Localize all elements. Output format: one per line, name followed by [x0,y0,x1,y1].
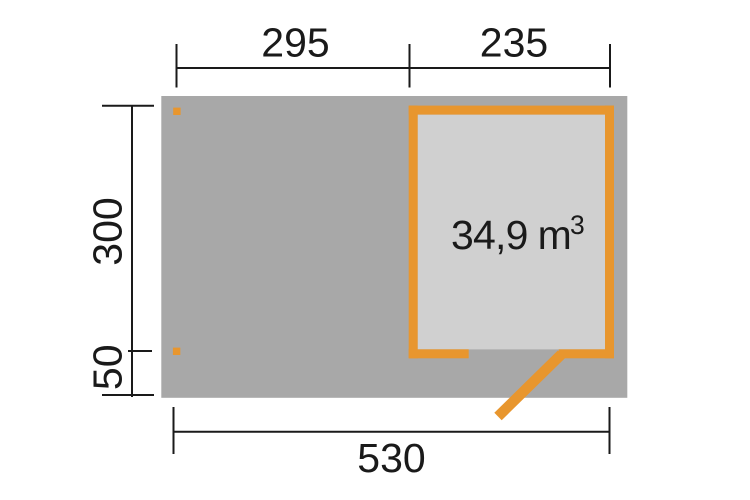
svg-text:m: m [538,212,572,258]
svg-text:530: 530 [357,435,425,481]
svg-text:295: 295 [261,20,329,66]
svg-text:34,9: 34,9 [451,212,528,258]
svg-text:300: 300 [84,197,130,265]
svg-text:3: 3 [570,210,585,240]
svg-text:50: 50 [84,344,130,390]
svg-text:235: 235 [480,20,548,66]
